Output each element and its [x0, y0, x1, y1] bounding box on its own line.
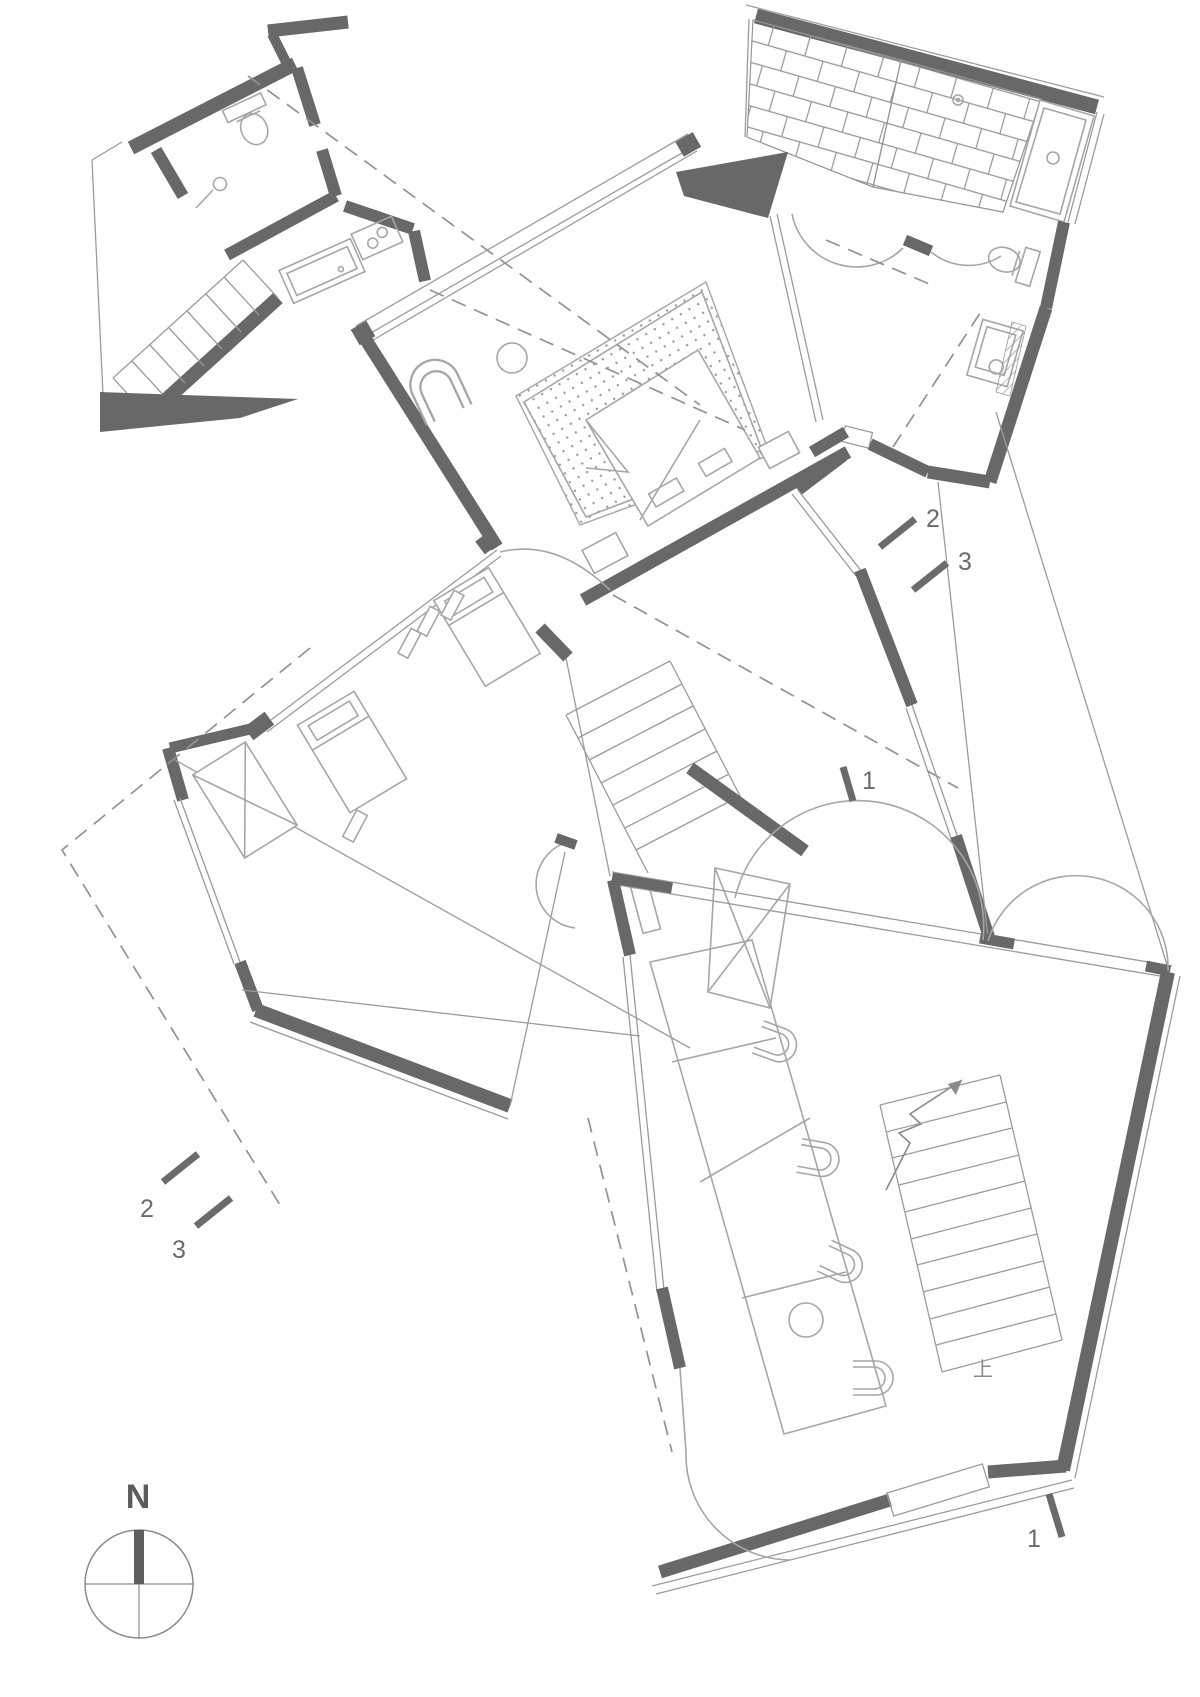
- toilet-icon: [984, 238, 1040, 286]
- stair-direction-arrow: [886, 1080, 962, 1190]
- stairs-up-label: 上: [973, 1358, 993, 1381]
- section-marker-1-bottom: 1: [1027, 1494, 1062, 1553]
- north-needle: [134, 1530, 144, 1584]
- study-room: 上: [588, 880, 1180, 1594]
- sink-icon: [196, 178, 227, 209]
- annex-stairs: [100, 260, 298, 432]
- section-marker-3-right: 3: [913, 548, 972, 590]
- door-swing: [988, 876, 1168, 971]
- section-label: 3: [958, 548, 972, 576]
- desk-item: [417, 606, 440, 636]
- compass-icon: N: [85, 1478, 193, 1638]
- desk-item: [398, 628, 421, 658]
- study-stairs: 上: [880, 1075, 1062, 1381]
- stool: [789, 1303, 823, 1337]
- floor-plan-sheet: 上 2 3 1 2 3 1 N: [0, 0, 1200, 1697]
- floor-plan-drawing: 上 2 3 1 2 3 1 N: [0, 0, 1200, 1697]
- door-swing: [536, 842, 575, 928]
- kids-bedroom: [62, 530, 690, 1205]
- desk-band: [650, 940, 886, 1434]
- chair-icon: [817, 1240, 868, 1288]
- closet: [708, 868, 790, 1008]
- nightstand: [758, 431, 799, 468]
- section-marker-2-right: 2: [880, 505, 940, 547]
- side-table: [497, 343, 527, 373]
- wall-wedge: [100, 392, 298, 432]
- section-label: 3: [172, 1236, 186, 1264]
- section-label: 1: [1027, 1525, 1041, 1553]
- chair-icon: [853, 1361, 893, 1395]
- nightstand: [582, 533, 628, 574]
- section-marker-1-upper: 1: [843, 767, 876, 801]
- central-stairs: [566, 661, 752, 873]
- section-label: 2: [140, 1195, 154, 1223]
- annex-bathroom: [92, 22, 348, 395]
- section-marker-3-left: 3: [172, 1198, 231, 1264]
- desk-item: [343, 810, 368, 842]
- section-label: 2: [926, 505, 940, 533]
- north-label: N: [126, 1478, 151, 1516]
- section-marker-2-left: 2: [140, 1154, 198, 1223]
- door-swings: [792, 214, 1001, 267]
- stove-icon: [351, 216, 403, 259]
- bed-single: [297, 691, 406, 812]
- wardrobe: [193, 742, 298, 858]
- section-label: 1: [862, 767, 876, 795]
- kitchen-counter: [279, 239, 365, 304]
